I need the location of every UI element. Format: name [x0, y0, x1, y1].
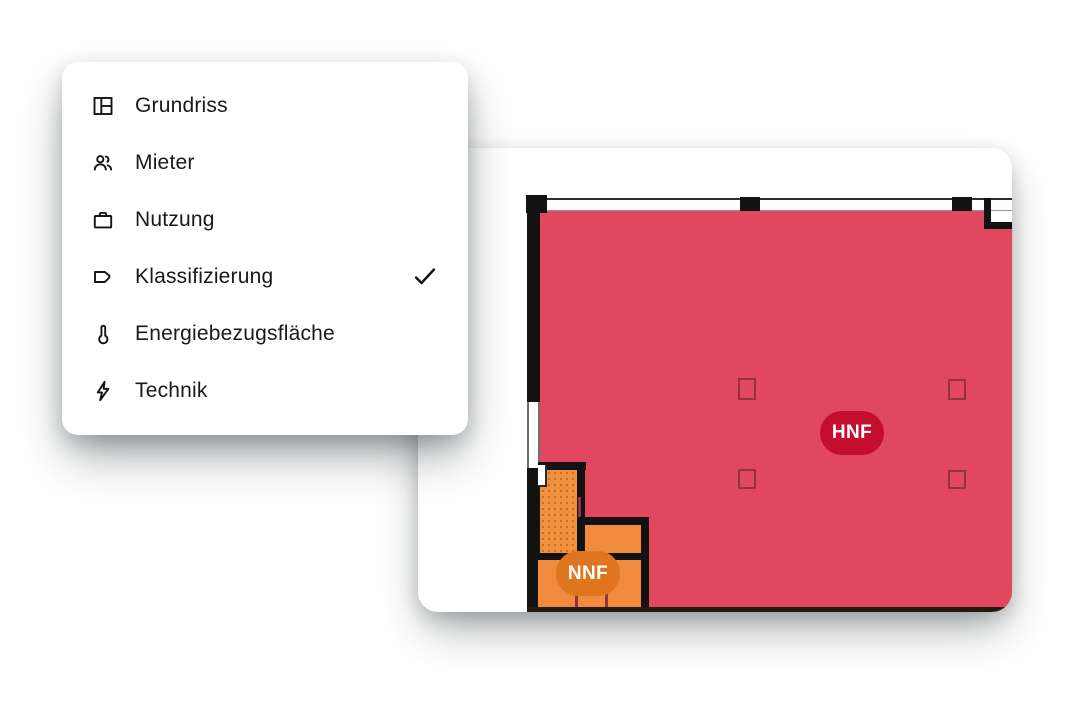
- door-frame: [578, 497, 581, 517]
- menu-item-energiebezugsflaeche[interactable]: Energiebezugsfläche: [62, 305, 468, 362]
- wall-column: [740, 197, 760, 211]
- layer-menu: Grundriss Mieter Nutzung: [62, 62, 468, 435]
- nnf-area[interactable]: [585, 525, 641, 553]
- wall-recess: [991, 211, 1012, 222]
- menu-item-label: Klassifizierung: [135, 265, 273, 289]
- floorplan-canvas: HNF NNF: [418, 148, 1012, 612]
- hnf-badge[interactable]: HNF: [820, 411, 884, 455]
- window-band: [527, 198, 1012, 211]
- wall-column: [952, 197, 972, 211]
- menu-item-label: Technik: [135, 379, 208, 403]
- wall-segment: [585, 517, 649, 525]
- wall-left-upper: [527, 196, 540, 402]
- nnf-badge[interactable]: NNF: [556, 551, 620, 596]
- lightning-icon: [90, 378, 115, 403]
- pillar-outline: [738, 469, 756, 489]
- menu-item-grundriss[interactable]: Grundriss: [62, 77, 468, 134]
- menu-item-mieter[interactable]: Mieter: [62, 134, 468, 191]
- page-background: HNF NNF Grundriss: [0, 0, 1072, 710]
- tag-icon: [90, 264, 115, 289]
- menu-item-nutzung[interactable]: Nutzung: [62, 191, 468, 248]
- floorplan-icon: [90, 93, 115, 118]
- briefcase-icon: [90, 207, 115, 232]
- window-opening: [527, 402, 540, 468]
- thermometer-icon: [90, 321, 115, 346]
- menu-item-label: Energiebezugsfläche: [135, 322, 335, 346]
- menu-item-label: Nutzung: [135, 208, 215, 232]
- menu-item-technik[interactable]: Technik: [62, 362, 468, 419]
- wall-segment: [641, 517, 649, 612]
- check-icon: [412, 264, 438, 290]
- wall-bottom: [527, 607, 1012, 612]
- tenants-icon: [90, 150, 115, 175]
- pillar-outline: [948, 470, 966, 489]
- menu-item-label: Mieter: [135, 151, 195, 175]
- menu-item-klassifizierung[interactable]: Klassifizierung: [62, 248, 468, 305]
- pillar-outline: [738, 378, 756, 400]
- pillar-outline: [948, 379, 966, 400]
- wall-segment: [984, 222, 1012, 229]
- wall-shaft: [538, 465, 547, 487]
- menu-item-label: Grundriss: [135, 94, 228, 118]
- floorplan-card: HNF NNF: [418, 148, 1012, 612]
